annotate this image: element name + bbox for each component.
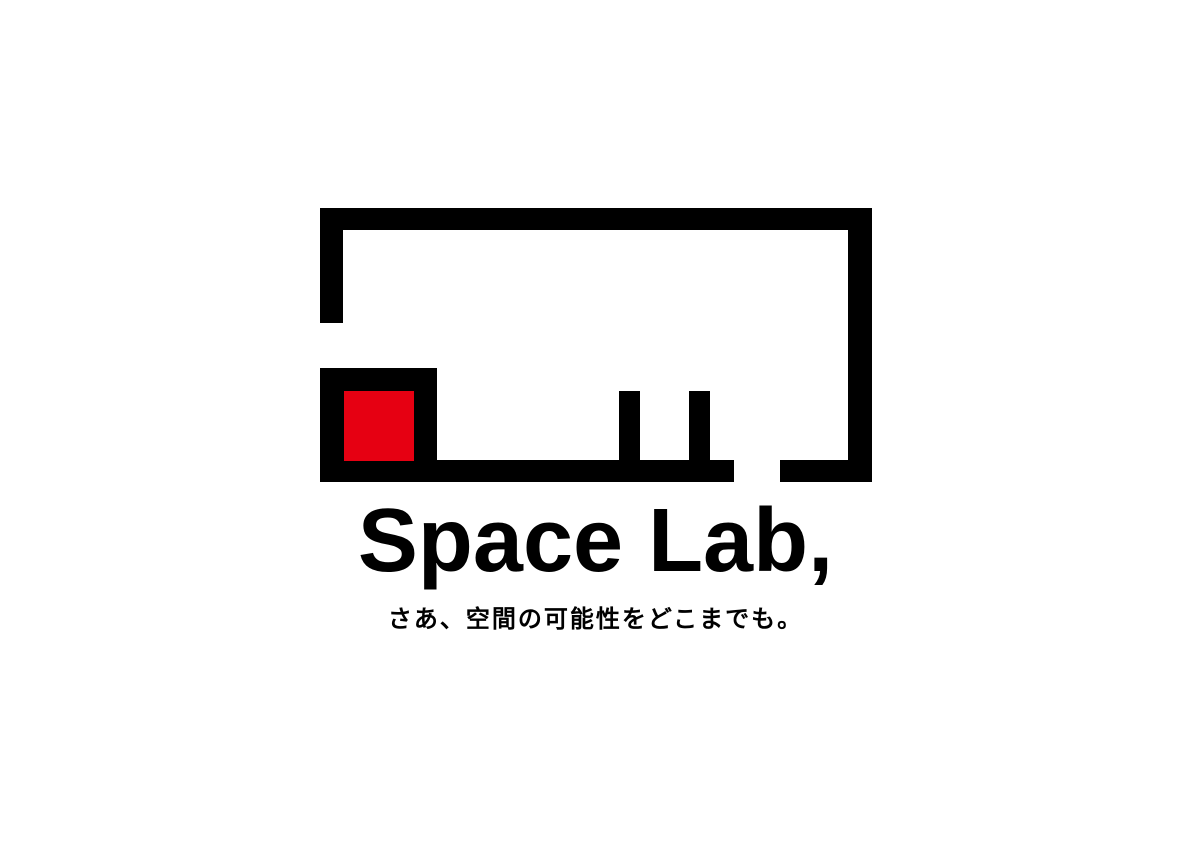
tagline: さあ、空間の可能性をどこまでも。: [0, 604, 1191, 635]
logo-canvas: Space Lab, さあ、空間の可能性をどこまでも。: [0, 0, 1191, 842]
logo-mark: [320, 208, 872, 482]
space-lab-logo: Space Lab, さあ、空間の可能性をどこまでも。: [0, 0, 1191, 635]
wordmark: Space Lab,: [0, 496, 1191, 586]
mark-right-wall: [848, 208, 872, 482]
mark-pillar-left: [619, 391, 640, 482]
mark-bottom-wall-right: [780, 460, 872, 482]
mark-red-square-accent: [344, 391, 414, 461]
mark-top-wall: [320, 208, 872, 230]
mark-pillar-right: [689, 391, 710, 482]
mark-left-wall: [320, 208, 343, 323]
